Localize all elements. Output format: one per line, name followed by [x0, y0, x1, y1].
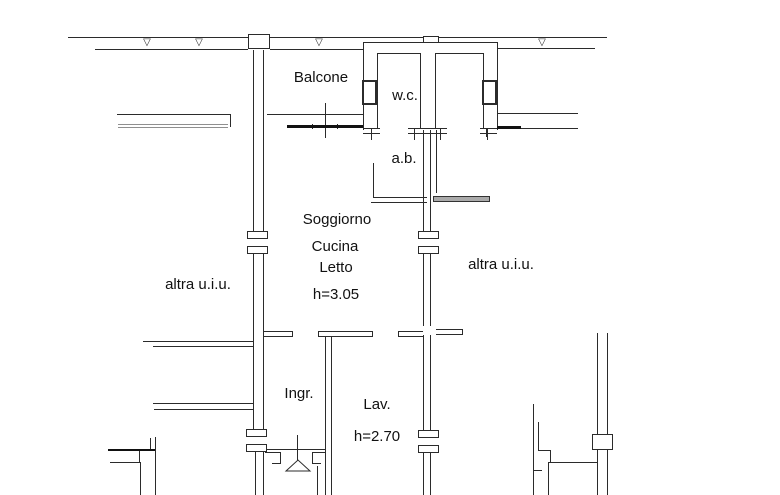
wall-segment [373, 163, 374, 197]
wall-segment [312, 463, 321, 464]
wall-segment [377, 53, 420, 54]
wall-segment [414, 128, 415, 140]
door-jamb [246, 444, 267, 452]
wall-segment [110, 462, 141, 463]
wall-segment [498, 113, 578, 114]
wall-segment [548, 462, 598, 463]
window-icon [482, 80, 497, 105]
wall-segment [325, 336, 326, 495]
wall-segment [263, 50, 264, 231]
door-jamb [423, 36, 439, 43]
wall-segment [253, 50, 254, 231]
door-jamb [592, 434, 613, 450]
wall-segment [480, 133, 497, 134]
wall-segment [143, 341, 253, 342]
wall-segment [430, 254, 431, 326]
label-ingresso: Ingr. [284, 386, 313, 402]
door-swing-icon [283, 457, 313, 473]
window-icon [362, 80, 377, 105]
wall-segment [317, 466, 318, 495]
wall-segment [372, 331, 373, 337]
wall-segment [435, 53, 483, 54]
wall-segment [430, 453, 431, 495]
balcony-edge [497, 126, 521, 129]
wall-segment [498, 48, 595, 49]
wall-segment [398, 336, 423, 337]
wall-segment [550, 450, 551, 462]
label-cucina: Cucina [312, 239, 359, 255]
label-soggiorno: Soggiorno [303, 212, 371, 228]
wall-segment [318, 336, 373, 337]
wall-segment [270, 49, 363, 50]
parapet-line [118, 127, 228, 128]
wall-segment [153, 403, 253, 404]
wall-segment [263, 452, 264, 495]
wall-segment [373, 197, 427, 198]
wall-segment [423, 254, 424, 326]
wall-segment [140, 462, 141, 495]
wall-segment [265, 449, 325, 450]
wall-segment [607, 333, 608, 434]
wall-segment [497, 42, 498, 130]
wall-segment [263, 331, 293, 332]
wall-segment [95, 49, 248, 50]
wall-segment [292, 331, 293, 337]
wall-segment [423, 335, 424, 430]
wall-segment [318, 331, 319, 337]
wall-segment [398, 331, 423, 332]
wall-segment [318, 331, 373, 332]
wall-stub [433, 196, 490, 202]
door-jamb [246, 429, 267, 437]
wall-segment [272, 463, 281, 464]
wall-segment [430, 335, 431, 430]
door-jamb [418, 246, 439, 254]
wall-segment [436, 329, 463, 330]
wall-segment [267, 114, 363, 115]
wall-segment [154, 409, 253, 410]
label-height-305: h=3.05 [313, 287, 359, 303]
wall-segment [597, 462, 598, 495]
wall-segment [371, 202, 427, 203]
wall-segment [331, 336, 332, 495]
balcony-edge [287, 125, 363, 128]
door-jamb [418, 231, 439, 239]
wall-segment [440, 128, 441, 140]
door-jamb [247, 231, 268, 239]
wall-segment [265, 452, 280, 453]
wall-segment [435, 53, 436, 128]
parapet-line [118, 124, 228, 125]
wall-segment [420, 53, 421, 128]
wall-segment [548, 462, 549, 495]
door-jamb [418, 445, 439, 453]
wall-segment [423, 453, 424, 495]
wall-segment [312, 452, 325, 453]
wall-segment [280, 452, 281, 463]
balcony-post-icon: ▽ [195, 38, 203, 48]
wall-segment [371, 128, 372, 140]
balcony-post-icon: ▽ [315, 38, 323, 48]
wall-segment [253, 254, 254, 429]
floor-plan-canvas: ▽ ▽ ▽ ▽ Balcone w.c. a.b. Soggiorno Cuci… [0, 0, 780, 495]
wall-segment [325, 103, 326, 138]
wall-segment [153, 346, 253, 347]
wall-segment [230, 114, 231, 127]
wall-segment [533, 470, 542, 471]
balcony-post-icon: ▽ [538, 38, 546, 48]
label-height-270: h=2.70 [354, 429, 400, 445]
wall-segment [117, 114, 230, 115]
wall-segment [538, 422, 539, 450]
wall-segment [533, 404, 534, 495]
wall-segment [430, 130, 431, 231]
wall-segment [263, 336, 293, 337]
wall-segment [436, 334, 463, 335]
wall-segment [423, 130, 424, 231]
label-altra-uiu-right: altra u.i.u. [468, 257, 534, 273]
wall-segment [139, 450, 140, 462]
wall-segment [263, 254, 264, 429]
wall-segment [377, 53, 378, 128]
wall-segment [155, 437, 156, 495]
wall-segment [398, 331, 399, 337]
label-wc: w.c. [392, 88, 418, 104]
wall-segment [436, 130, 437, 193]
label-ab: a.b. [391, 151, 416, 167]
label-letto: Letto [319, 260, 352, 276]
balcony-edge [108, 449, 155, 451]
label-lavanderia: Lav. [363, 397, 390, 413]
label-balcone: Balcone [294, 70, 348, 86]
label-altra-uiu-left: altra u.i.u. [165, 277, 231, 293]
door-jamb [418, 430, 439, 438]
wall-segment [487, 128, 488, 140]
wall-segment [607, 450, 608, 495]
wall-segment [462, 329, 463, 335]
wall-segment [255, 452, 256, 495]
balcony-post-icon: ▽ [143, 38, 151, 48]
door-jamb [248, 34, 270, 49]
door-jamb [247, 246, 268, 254]
wall-segment [597, 450, 598, 462]
wall-segment [538, 450, 550, 451]
wall-segment [597, 333, 598, 434]
wall-segment [486, 128, 487, 137]
